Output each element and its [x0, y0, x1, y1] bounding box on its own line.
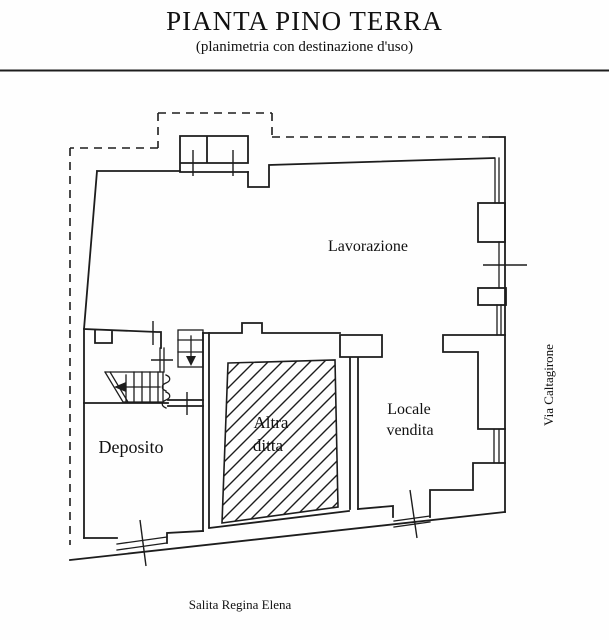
street-label-salita-regina-elena: Salita Regina Elena [189, 597, 292, 612]
windows [151, 150, 527, 463]
door-tick-locale-vendita [410, 490, 417, 538]
door-tick-deposito [140, 520, 146, 566]
street-label-via-caltagirone: Via Caltagirone [541, 344, 556, 426]
window-right-bottom [494, 430, 499, 463]
label-locale-vendita-line1: Locale [387, 401, 431, 418]
floor-plan-drawing: Lavorazione Deposito Altra ditta Locale … [0, 0, 609, 640]
label-lavorazione: Lavorazione [328, 238, 408, 255]
label-altra-ditta-line2: ditta [253, 436, 284, 455]
label-locale-vendita-line2: vendita [386, 422, 433, 439]
stair-winder [105, 372, 163, 402]
label-altra-ditta-line1: Altra [254, 413, 289, 432]
stair-straight [178, 330, 203, 367]
label-deposito: Deposito [99, 437, 164, 457]
floor-plan-page: PIANTA PINO TERRA (planimetria con desti… [0, 0, 609, 640]
room-labels: Lavorazione Deposito Altra ditta Locale … [99, 238, 434, 457]
window-right-mid2 [497, 305, 501, 335]
stairs [105, 330, 203, 408]
window-right-top [495, 158, 499, 203]
